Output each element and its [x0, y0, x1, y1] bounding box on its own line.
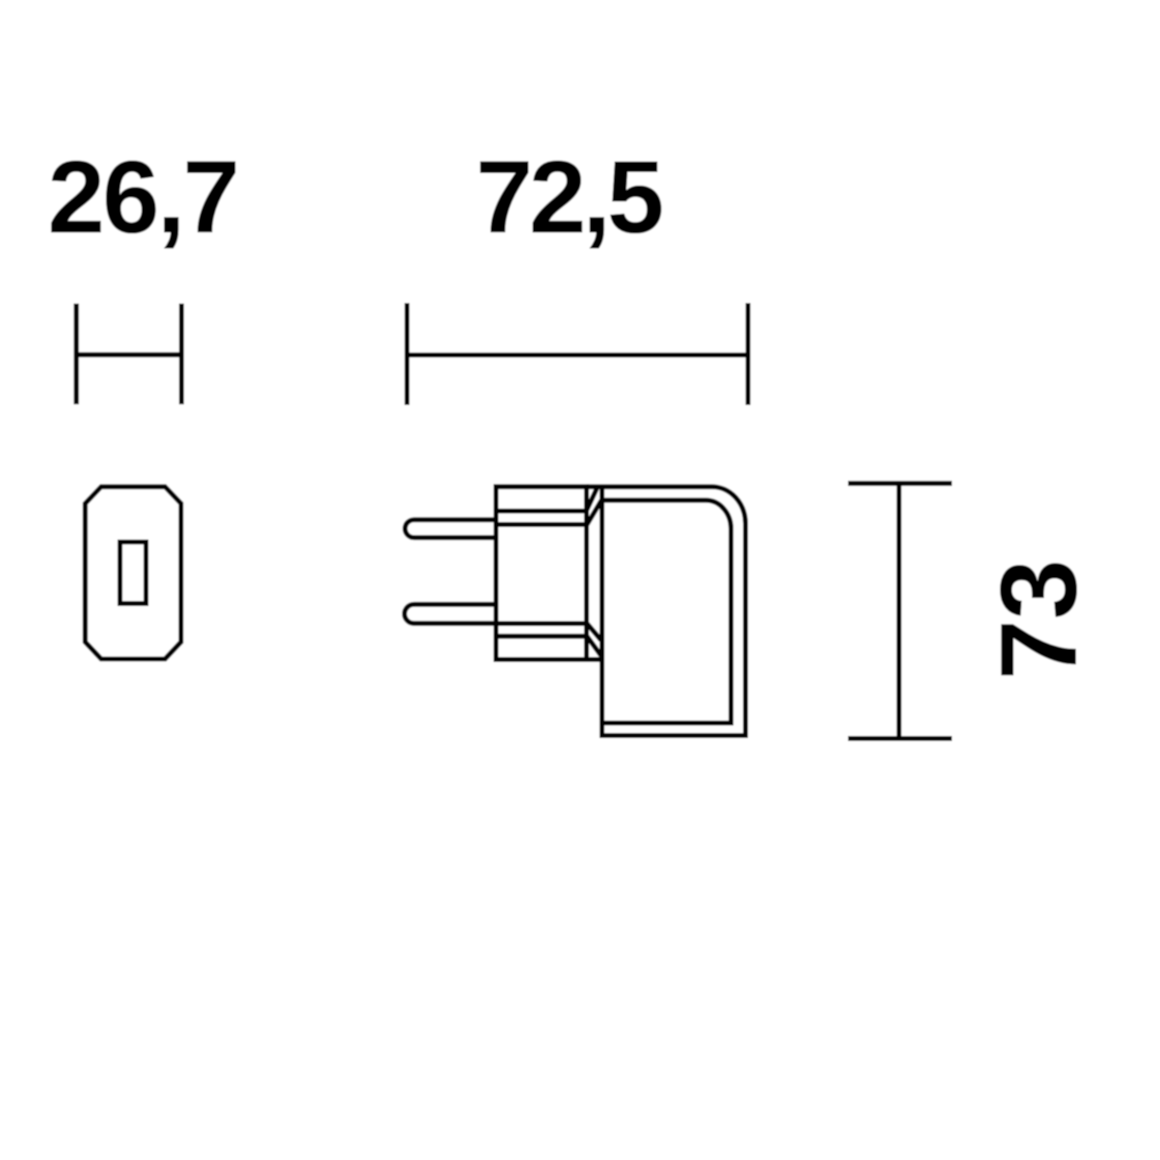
svg-text:73: 73: [978, 559, 1099, 680]
svg-text:72,5: 72,5: [476, 140, 662, 255]
svg-text:26,7: 26,7: [48, 139, 238, 254]
